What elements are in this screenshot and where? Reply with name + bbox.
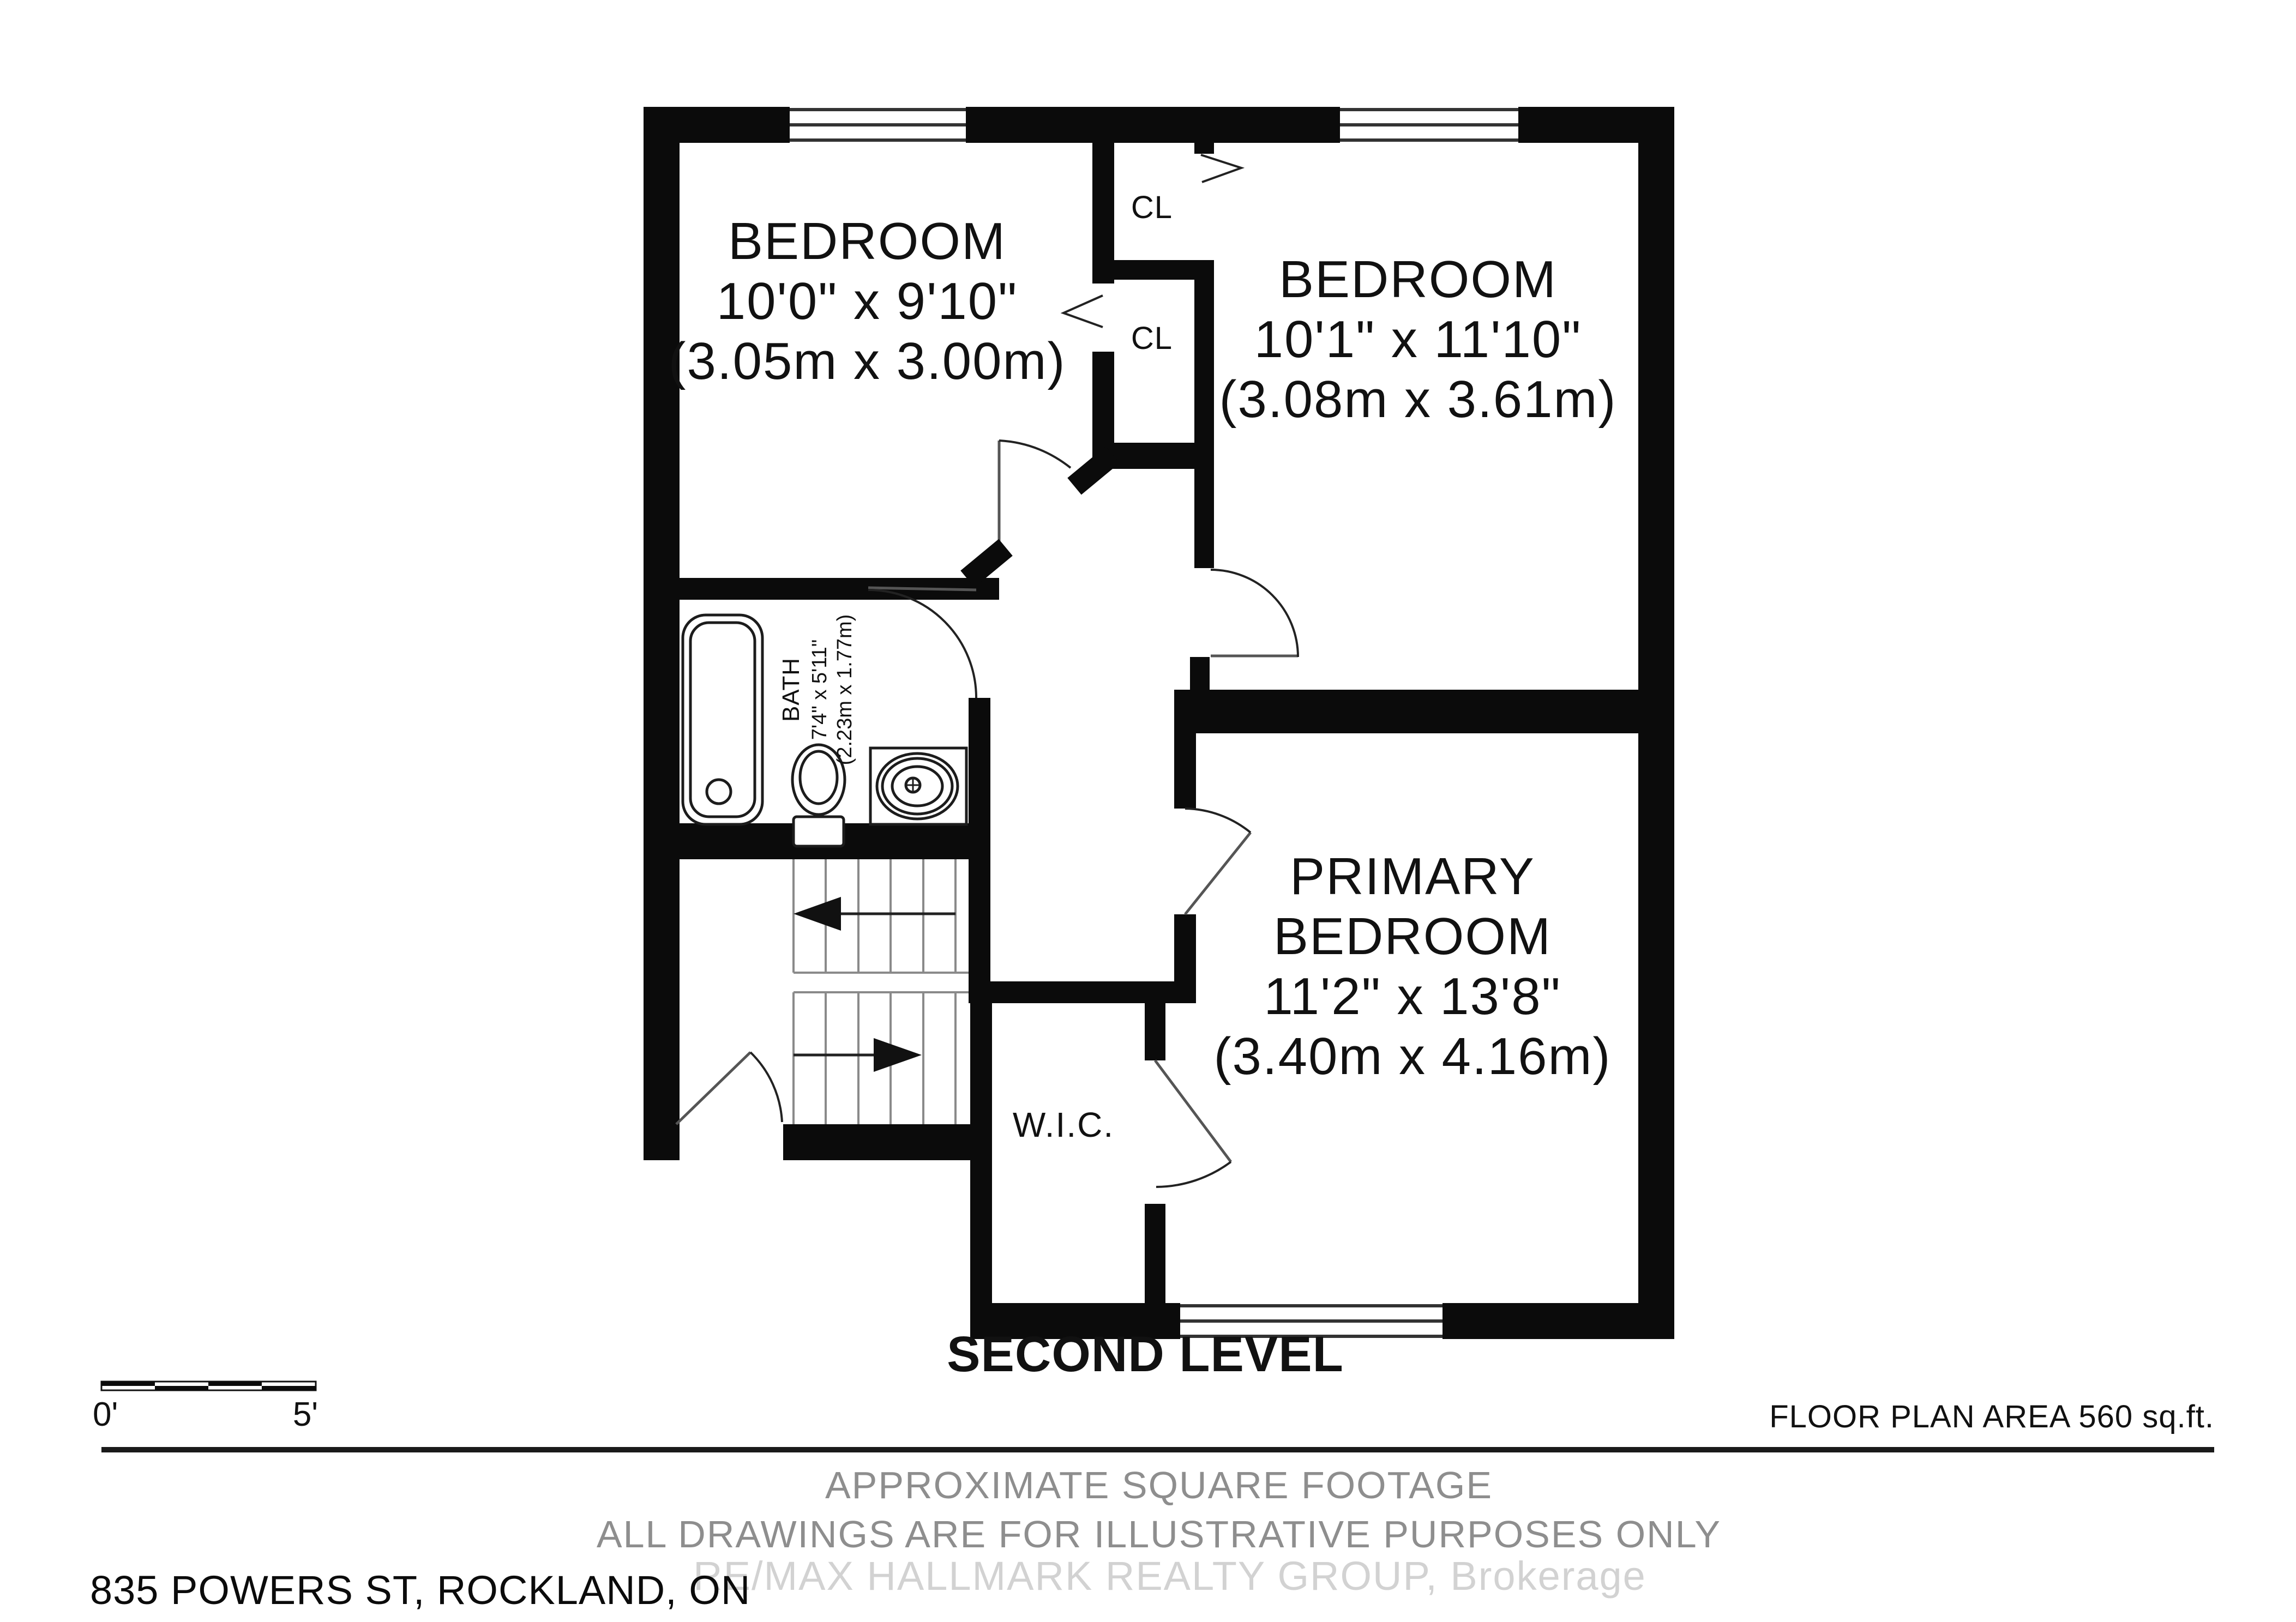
door-bedroom-left bbox=[967, 441, 1113, 579]
sink-icon bbox=[870, 748, 966, 824]
window-top-right bbox=[1340, 107, 1518, 143]
bath-metric: (2.23m x 1.77m) bbox=[833, 614, 856, 765]
door-bath bbox=[868, 588, 976, 698]
bedroom-left-name: BEDROOM bbox=[728, 212, 1006, 270]
level-title: SECOND LEVEL bbox=[947, 1326, 1344, 1382]
label-closet-top: CL bbox=[1131, 190, 1173, 225]
bedroom-right-dims: 10'1" x 11'10" bbox=[1254, 310, 1582, 369]
label-wic: W.I.C. bbox=[1013, 1105, 1114, 1144]
scale-start-label: 0' bbox=[93, 1396, 118, 1433]
scale-end-label: 5' bbox=[293, 1396, 318, 1433]
floor-plan-page: BEDROOM 10'0" x 9'10" (3.05m x 3.00m) BE… bbox=[0, 0, 2296, 1622]
bedroom-right-name: BEDROOM bbox=[1279, 250, 1557, 309]
door-primary-bedroom bbox=[1185, 809, 1251, 914]
footer-line2: ALL DRAWINGS ARE FOR ILLUSTRATIVE PURPOS… bbox=[597, 1513, 1721, 1555]
property-address: 835 POWERS ST, ROCKLAND, ON bbox=[90, 1567, 750, 1613]
door-closet-bottom bbox=[1063, 296, 1103, 327]
stair-arrow-up bbox=[794, 897, 955, 931]
bedroom-right-metric: (3.08m x 3.61m) bbox=[1219, 370, 1617, 429]
bath-dims: 7'4" x 5'11" bbox=[808, 640, 831, 740]
floor-plan-drawing: BEDROOM 10'0" x 9'10" (3.05m x 3.00m) BE… bbox=[0, 0, 2296, 1622]
bedroom-left-dims: 10'0" x 9'10" bbox=[717, 272, 1018, 330]
label-closet-bottom: CL bbox=[1131, 321, 1173, 356]
label-primary-bedroom: PRIMARY BEDROOM 11'2" x 13'8" (3.40m x 4… bbox=[1214, 847, 1612, 1086]
label-bedroom-right: BEDROOM 10'1" x 11'10" (3.08m x 3.61m) bbox=[1219, 250, 1617, 429]
bath-name: BATH bbox=[778, 658, 804, 722]
primary-dims: 11'2" x 13'8" bbox=[1264, 967, 1561, 1026]
door-stair-hall-entry bbox=[676, 1052, 782, 1124]
scale-bar: 0' 5' bbox=[93, 1382, 318, 1433]
primary-metric: (3.40m x 4.16m) bbox=[1214, 1027, 1612, 1086]
primary-name-1: PRIMARY bbox=[1290, 847, 1535, 906]
stairs bbox=[794, 859, 969, 1124]
window-top-left bbox=[790, 107, 966, 143]
brokerage-watermark: RE/MAX HALLMARK REALTY GROUP, Brokerage bbox=[693, 1553, 1646, 1599]
footer-line1: APPROXIMATE SQUARE FOOTAGE bbox=[825, 1464, 1493, 1506]
door-bedroom-right bbox=[1211, 570, 1298, 657]
bedroom-left-metric: (3.05m x 3.00m) bbox=[669, 332, 1066, 390]
bathtub-icon bbox=[683, 615, 762, 824]
label-bedroom-left: BEDROOM 10'0" x 9'10" (3.05m x 3.00m) bbox=[669, 212, 1066, 390]
label-bath: BATH 7'4" x 5'11" (2.23m x 1.77m) bbox=[778, 614, 856, 765]
primary-name-2: BEDROOM bbox=[1273, 907, 1552, 966]
floor-plan-area-note: FLOOR PLAN AREA 560 sq.ft. bbox=[1769, 1399, 2214, 1434]
door-closet-top bbox=[1201, 155, 1241, 182]
